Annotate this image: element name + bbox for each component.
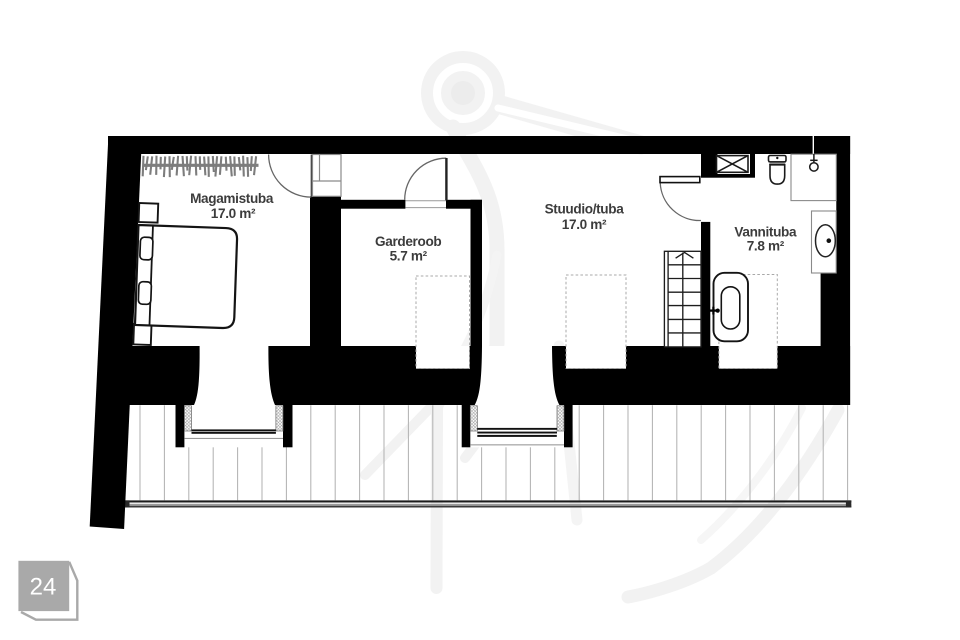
svg-text:17.0 m²: 17.0 m²: [211, 206, 256, 221]
svg-text:Garderoob: Garderoob: [375, 234, 441, 249]
svg-text:Magamistuba: Magamistuba: [190, 191, 274, 206]
svg-text:5.7 m²: 5.7 m²: [390, 248, 428, 263]
svg-text:17.0 m²: 17.0 m²: [562, 217, 607, 232]
svg-text:Stuudio/tuba: Stuudio/tuba: [545, 202, 625, 217]
svg-text:7.8 m²: 7.8 m²: [747, 239, 785, 254]
svg-text:24: 24: [30, 574, 57, 601]
svg-text:Vannituba: Vannituba: [734, 225, 797, 240]
